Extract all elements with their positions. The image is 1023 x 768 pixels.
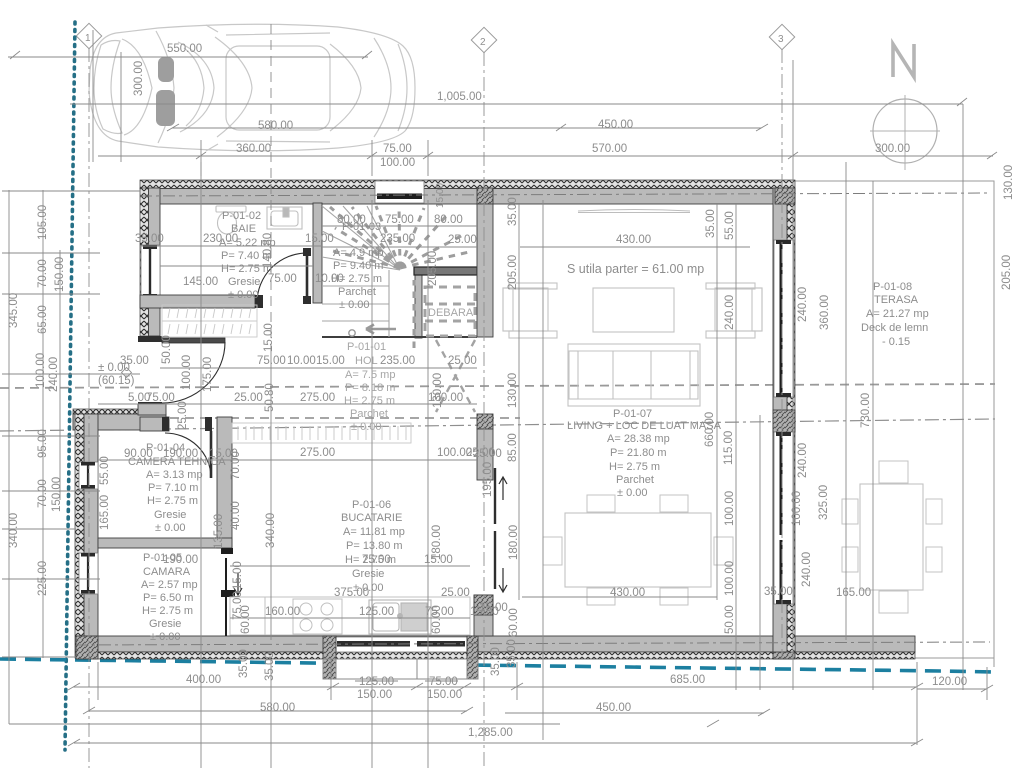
svg-text:550.00: 550.00 <box>167 43 202 55</box>
svg-text:180.00: 180.00 <box>508 525 520 560</box>
svg-text:150.00: 150.00 <box>54 257 66 292</box>
svg-text:430.00: 430.00 <box>616 234 651 246</box>
svg-text:Gresie: Gresie <box>154 509 186 521</box>
svg-text:A= 5.22 mp: A= 5.22 mp <box>219 237 276 249</box>
svg-text:100.00: 100.00 <box>791 491 803 526</box>
svg-text:100.00: 100.00 <box>724 561 736 596</box>
svg-text:BAIE: BAIE <box>231 223 256 235</box>
svg-text:70.00: 70.00 <box>37 479 49 508</box>
svg-text:450.00: 450.00 <box>598 119 633 131</box>
svg-text:10.00: 10.00 <box>287 355 316 367</box>
svg-text:75.00: 75.00 <box>385 214 414 226</box>
svg-text:60.00: 60.00 <box>240 605 252 634</box>
svg-text:15.00: 15.00 <box>435 183 446 208</box>
svg-text:H= 2.75 m: H= 2.75 m <box>331 273 382 285</box>
svg-text:100.00: 100.00 <box>181 355 193 390</box>
svg-text:H= 2.75 m: H= 2.75 m <box>344 395 395 407</box>
svg-text:400.00: 400.00 <box>186 674 221 686</box>
svg-text:50.00: 50.00 <box>161 335 173 364</box>
svg-text:Parchet: Parchet <box>616 474 654 486</box>
svg-text:70.00: 70.00 <box>37 259 49 288</box>
svg-text:P= 7.10 m: P= 7.10 m <box>148 482 198 494</box>
svg-text:H= 2.75 m: H= 2.75 m <box>609 461 660 473</box>
svg-text:P= 7.40 m: P= 7.40 m <box>221 250 271 262</box>
svg-text:35.00: 35.00 <box>264 652 276 681</box>
svg-text:P-01-07: P-01-07 <box>613 408 652 420</box>
svg-text:± 0.00: ± 0.00 <box>353 582 384 594</box>
svg-text:15.00: 15.00 <box>232 561 244 590</box>
svg-text:125.00: 125.00 <box>359 606 394 618</box>
svg-text:A= 2.57 mp: A= 2.57 mp <box>141 579 198 591</box>
svg-text:360.00: 360.00 <box>819 295 831 330</box>
svg-text:2: 2 <box>480 37 486 48</box>
svg-text:CAMERA TEHNICA: CAMERA TEHNICA <box>128 456 226 468</box>
svg-text:± 0.00: ± 0.00 <box>228 289 259 301</box>
svg-text:35.00: 35.00 <box>490 647 502 676</box>
svg-text:55.00: 55.00 <box>724 211 736 240</box>
svg-text:P-01-05: P-01-05 <box>143 552 182 564</box>
svg-text:205.00: 205.00 <box>1001 255 1013 290</box>
svg-text:165.00: 165.00 <box>99 495 111 530</box>
svg-text:115.00: 115.00 <box>723 431 735 465</box>
svg-text:300.00: 300.00 <box>875 143 910 155</box>
svg-text:120.00: 120.00 <box>932 676 967 688</box>
svg-text:730.00: 730.00 <box>860 393 872 428</box>
svg-text:75.00: 75.00 <box>383 143 412 155</box>
svg-text:80.00: 80.00 <box>434 214 463 226</box>
svg-text:75.00: 75.00 <box>257 355 286 367</box>
svg-text:Deck de lemn: Deck de lemn <box>861 322 928 334</box>
svg-text:1,285.00: 1,285.00 <box>468 727 513 739</box>
svg-text:275.00: 275.00 <box>300 447 335 459</box>
svg-text:LIVING + LOC DE LUAT MASA: LIVING + LOC DE LUAT MASA <box>567 420 722 432</box>
svg-text:100.00: 100.00 <box>724 491 736 526</box>
svg-text:± 0.00: ± 0.00 <box>339 299 370 311</box>
svg-text:570.00: 570.00 <box>592 143 627 155</box>
svg-text:235.00: 235.00 <box>380 355 415 367</box>
svg-text:P= 21.80 m: P= 21.80 m <box>610 447 667 459</box>
svg-text:15.00: 15.00 <box>316 355 345 367</box>
svg-text:35.00: 35.00 <box>238 649 250 678</box>
svg-text:180.00: 180.00 <box>431 525 443 560</box>
svg-text:105.00: 105.00 <box>37 205 49 240</box>
svg-text:50.00: 50.00 <box>724 605 736 634</box>
svg-text:H= 2.75 m: H= 2.75 m <box>142 605 193 617</box>
svg-text:685.00: 685.00 <box>670 674 705 686</box>
svg-text:25.00: 25.00 <box>473 448 502 460</box>
svg-text:± 0.00: ± 0.00 <box>155 522 186 534</box>
svg-text:15.00: 15.00 <box>305 233 334 245</box>
svg-text:H= 2.75 m: H= 2.75 m <box>345 554 396 566</box>
svg-text:225.00: 225.00 <box>37 561 49 596</box>
svg-text:35.00: 35.00 <box>507 197 519 226</box>
svg-text:Gresie: Gresie <box>352 568 384 580</box>
svg-text:205.00: 205.00 <box>427 251 439 286</box>
svg-text:Parchet: Parchet <box>350 408 388 420</box>
svg-text:25.00: 25.00 <box>234 392 263 404</box>
svg-text:360.00: 360.00 <box>236 143 271 155</box>
svg-text:HOL: HOL <box>355 355 378 367</box>
svg-text:205.00: 205.00 <box>507 255 519 290</box>
svg-text:240.00: 240.00 <box>724 295 736 330</box>
svg-text:50.80: 50.80 <box>264 383 276 412</box>
svg-text:25.00: 25.00 <box>177 401 189 430</box>
svg-text:150.00: 150.00 <box>427 689 462 701</box>
svg-text:P-01-03: P-01-03 <box>342 221 381 233</box>
svg-text:± 0.00: ± 0.00 <box>150 631 181 643</box>
svg-text:P-01-06: P-01-06 <box>352 499 391 511</box>
svg-text:240.00: 240.00 <box>48 357 60 392</box>
svg-text:1,005.00: 1,005.00 <box>437 91 482 103</box>
svg-text:P= 13.80 m: P= 13.80 m <box>346 540 403 552</box>
svg-text:25.00: 25.00 <box>441 587 470 599</box>
svg-text:450.00: 450.00 <box>596 702 631 714</box>
svg-text:CAMARA: CAMARA <box>143 566 191 578</box>
svg-text:130.00: 130.00 <box>1003 165 1015 200</box>
svg-text:TERASA: TERASA <box>874 294 919 306</box>
svg-text:130.00: 130.00 <box>432 373 444 408</box>
svg-text:A= 7.5 mp: A= 7.5 mp <box>345 369 395 381</box>
svg-text:150.00: 150.00 <box>357 689 392 701</box>
svg-text:BUCATARIE: BUCATARIE <box>341 512 402 524</box>
svg-text:35.00: 35.00 <box>705 209 717 238</box>
svg-text:A= 21.27 mp: A= 21.27 mp <box>866 308 929 320</box>
svg-text:160.00: 160.00 <box>265 606 300 618</box>
svg-text:(60.15): (60.15) <box>98 375 135 387</box>
svg-text:65.00: 65.00 <box>37 305 49 334</box>
svg-text:35.00: 35.00 <box>135 233 164 245</box>
svg-text:P-01-02: P-01-02 <box>222 210 261 222</box>
svg-text:Parchet: Parchet <box>338 286 376 298</box>
svg-text:Gresie: Gresie <box>149 618 181 630</box>
svg-text:580.00: 580.00 <box>258 120 293 132</box>
svg-text:325.00: 325.00 <box>818 485 830 520</box>
svg-text:± 0.00: ± 0.00 <box>351 421 382 433</box>
svg-text:A= 3.13 mp: A= 3.13 mp <box>146 469 203 481</box>
svg-text:125.00: 125.00 <box>359 676 394 688</box>
svg-text:A= 4.9 mp: A= 4.9 mp <box>333 247 383 259</box>
svg-text:300.00: 300.00 <box>133 61 145 96</box>
svg-text:60.00: 60.00 <box>508 608 520 637</box>
svg-text:240.00: 240.00 <box>801 552 813 587</box>
svg-text:± 0.00: ± 0.00 <box>617 487 648 499</box>
svg-text:H= 2.75 m: H= 2.75 m <box>221 263 272 275</box>
svg-text:240.00: 240.00 <box>797 287 809 322</box>
svg-text:3: 3 <box>778 34 784 45</box>
svg-text:15.00: 15.00 <box>479 602 508 614</box>
svg-text:P-01-04: P-01-04 <box>146 442 185 454</box>
svg-text:H= 2.75 m: H= 2.75 m <box>147 495 198 507</box>
svg-text:345.00: 345.00 <box>8 293 20 328</box>
svg-text:P= 8.18 m: P= 8.18 m <box>345 382 395 394</box>
svg-text:S utila parter = 61.00 mp: S utila parter = 61.00 mp <box>567 262 704 276</box>
svg-text:580.00: 580.00 <box>260 702 295 714</box>
svg-text:P-01-08: P-01-08 <box>873 281 912 293</box>
svg-text:DEBARA: DEBARA <box>428 307 474 319</box>
svg-text:130.00: 130.00 <box>507 373 519 408</box>
svg-text:95.00: 95.00 <box>37 429 49 458</box>
svg-text:25.00: 25.00 <box>448 355 477 367</box>
svg-text:40.00: 40.00 <box>230 501 242 530</box>
svg-text:100.00: 100.00 <box>380 157 415 169</box>
svg-text:35.00: 35.00 <box>506 639 518 668</box>
svg-text:35.00: 35.00 <box>764 586 793 598</box>
svg-text:75.00: 75.00 <box>429 676 458 688</box>
svg-text:135.00: 135.00 <box>213 514 225 549</box>
svg-text:145.00: 145.00 <box>183 276 218 288</box>
svg-text:P-01-01: P-01-01 <box>347 341 386 353</box>
svg-text:340.00: 340.00 <box>265 513 277 548</box>
svg-text:85.00: 85.00 <box>507 433 519 462</box>
svg-text:235.00: 235.00 <box>380 233 415 245</box>
svg-text:P= 6.50 m: P= 6.50 m <box>143 592 193 604</box>
svg-text:55.00: 55.00 <box>99 456 111 485</box>
svg-text:75.00: 75.00 <box>268 273 297 285</box>
svg-text:A= 28.38 mp: A= 28.38 mp <box>607 433 670 445</box>
svg-text:165.00: 165.00 <box>836 587 871 599</box>
svg-text:Gresie: Gresie <box>228 276 260 288</box>
svg-text:195.00: 195.00 <box>482 462 494 497</box>
svg-text:± 0.00: ± 0.00 <box>98 362 130 374</box>
svg-text:15.00: 15.00 <box>263 323 275 352</box>
svg-text:100.00: 100.00 <box>35 353 47 388</box>
svg-text:60.00: 60.00 <box>431 605 443 634</box>
svg-text:25.00: 25.00 <box>448 234 477 246</box>
svg-text:240.00: 240.00 <box>797 443 809 478</box>
svg-text:P= 9.40 m: P= 9.40 m <box>333 260 383 272</box>
svg-text:175.00: 175.00 <box>202 357 214 392</box>
svg-text:340.00: 340.00 <box>8 513 20 548</box>
svg-text:A= 11.81 mp: A= 11.81 mp <box>343 526 405 538</box>
svg-text:150.00: 150.00 <box>51 477 63 512</box>
svg-text:75.00: 75.00 <box>146 392 175 404</box>
svg-text:- 0.15: - 0.15 <box>882 336 910 348</box>
svg-text:70.00: 70.00 <box>230 451 242 480</box>
svg-text:1: 1 <box>85 33 91 44</box>
svg-text:275.00: 275.00 <box>300 392 335 404</box>
